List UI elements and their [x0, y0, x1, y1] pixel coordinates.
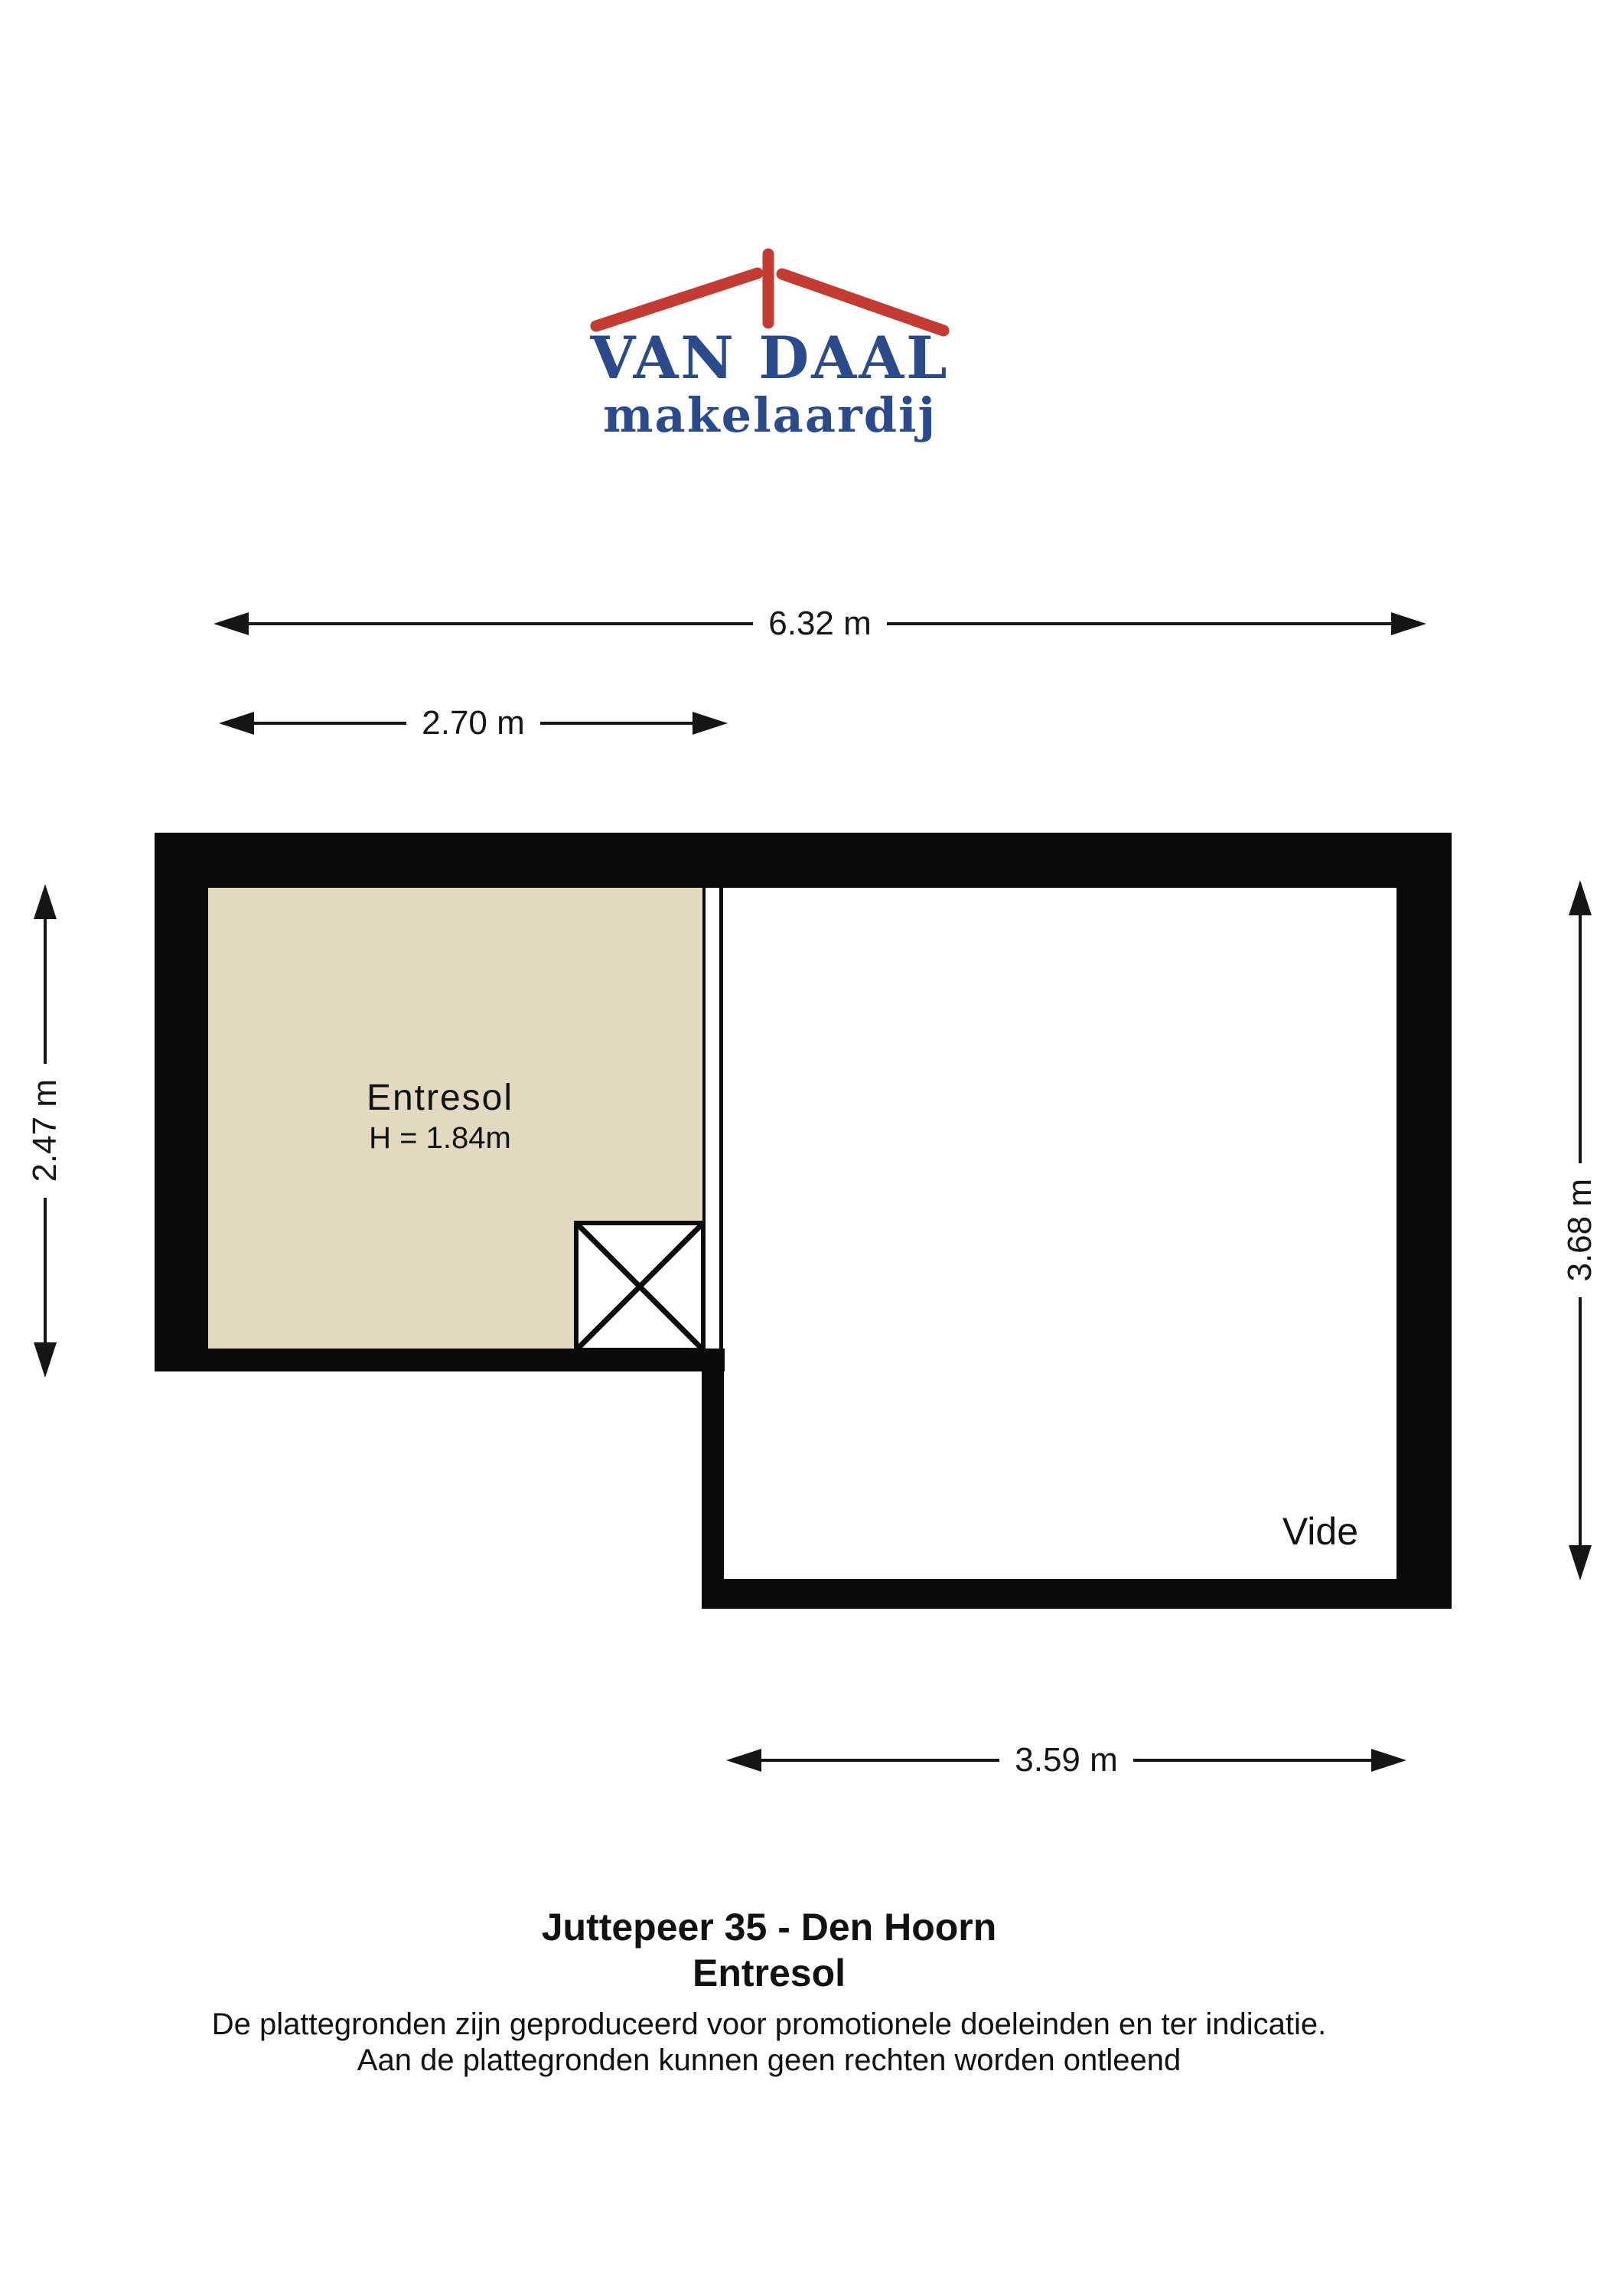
dimension-line [1579, 1297, 1582, 1545]
disclaimer-line-2: Aan de plattegronden kunnen geen rechten… [0, 2043, 1538, 2079]
wall-left [155, 888, 208, 1371]
arrowhead-down-icon [34, 1342, 57, 1378]
wall-vide-left [702, 1370, 724, 1579]
dimension-line [44, 919, 47, 1064]
arrowhead-right-icon [1371, 1749, 1406, 1772]
dimension-line [761, 1759, 999, 1762]
dimension-line [1579, 915, 1582, 1163]
dimension-label: 6.32 m [753, 605, 887, 642]
wall-vide-bottom [702, 1579, 1452, 1609]
dimension-line [249, 622, 753, 625]
railing-line-outer [719, 888, 723, 1349]
arrowhead-right-icon [1391, 612, 1426, 635]
logo-subtitle: makelaardij [536, 392, 1004, 439]
floor-line: Entresol [0, 1950, 1538, 1996]
dimension-entresol-width: 2.70 m [219, 702, 728, 745]
dimension-line [1133, 1759, 1371, 1762]
dimension-line [887, 622, 1391, 625]
wall-top [155, 833, 1452, 888]
dimension-vide-width: 3.59 m [726, 1739, 1406, 1782]
arrowhead-up-icon [34, 884, 57, 919]
dimension-vide-depth: 3.68 m [1559, 880, 1602, 1580]
room-name: Entresol [287, 1078, 593, 1119]
dimension-line [44, 1198, 47, 1342]
wall-right [1396, 888, 1452, 1609]
crossed-box-icon [574, 1221, 706, 1352]
logo-wordmark: VAN DAAL [536, 329, 1004, 387]
dimension-label: 2.70 m [406, 705, 540, 742]
room-height-note: H = 1.84m [287, 1119, 593, 1157]
dimension-line [540, 722, 693, 725]
arrowhead-left-icon [213, 612, 249, 635]
arrowhead-down-icon [1569, 1545, 1592, 1580]
address-line: Juttepeer 35 - Den Hoorn [0, 1904, 1538, 1950]
disclaimer-line-1: De plattegronden zijn geproduceerd voor … [0, 2007, 1538, 2043]
arrowhead-left-icon [726, 1749, 761, 1772]
page-title: Juttepeer 35 - Den Hoorn Entresol [0, 1904, 1538, 1996]
dimension-entresol-depth: 2.47 m [24, 884, 67, 1378]
disclaimer: De plattegronden zijn geproduceerd voor … [0, 2007, 1538, 2079]
dimension-label: 3.68 m [1562, 1163, 1599, 1297]
dimension-line [254, 722, 406, 725]
room-label-entresol: Entresol H = 1.84m [287, 1078, 593, 1157]
dimension-label: 2.47 m [27, 1064, 64, 1198]
arrowhead-left-icon [219, 712, 254, 735]
arrowhead-up-icon [1569, 880, 1592, 915]
dimension-total-width: 6.32 m [213, 602, 1426, 645]
floorplan-page: VAN DAAL makelaardij 6.32 m 2.70 m 2.47 … [0, 0, 1623, 2296]
room-label-vide: Vide [1163, 1511, 1358, 1552]
arrowhead-right-icon [693, 712, 728, 735]
dimension-label: 3.59 m [999, 1742, 1133, 1779]
